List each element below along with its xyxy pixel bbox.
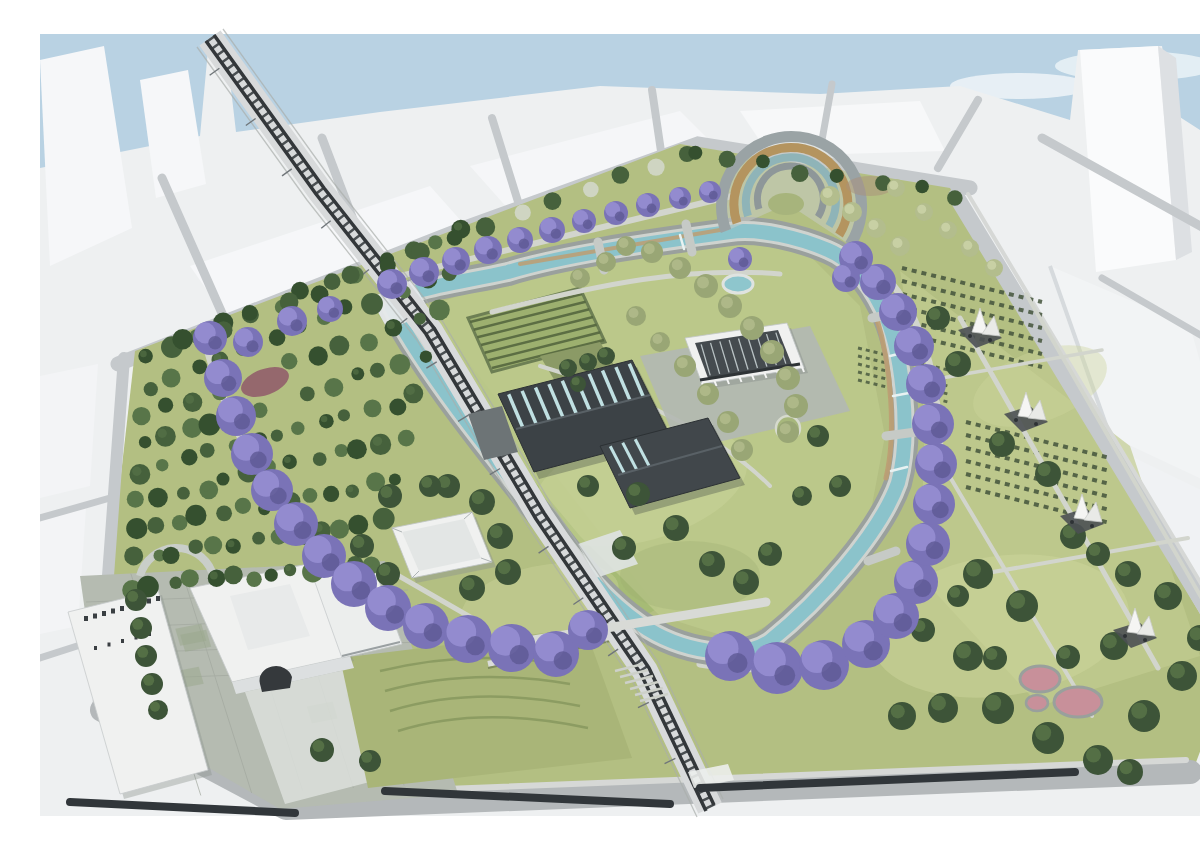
amphitheater-stage-lawn <box>768 193 804 215</box>
forest-tree <box>124 546 143 565</box>
forest-tree <box>271 430 283 442</box>
forest-tree <box>361 293 383 315</box>
forest-tree <box>246 572 261 587</box>
jacaranda-tree <box>193 321 227 355</box>
forest-tree <box>313 452 327 466</box>
jacaranda-tree <box>507 227 533 253</box>
forest-tree <box>177 487 190 500</box>
street-tree <box>688 146 702 160</box>
jacaranda-tree <box>568 610 608 650</box>
forest-tree <box>158 398 173 413</box>
jacaranda-tree <box>636 193 660 217</box>
forest-tree <box>398 430 415 447</box>
jacaranda-tree <box>442 247 470 275</box>
street-tree <box>476 217 495 236</box>
forest-tree <box>390 354 411 375</box>
street-tree <box>791 165 808 182</box>
forest-tree <box>324 378 343 397</box>
forest-tree <box>323 486 339 502</box>
jacaranda-tree <box>604 201 628 225</box>
jacaranda-tree <box>705 631 755 681</box>
jacaranda-tree <box>894 326 934 366</box>
jacaranda-tree <box>832 264 860 292</box>
street-tree <box>647 158 664 175</box>
street-tree <box>612 166 630 184</box>
masterplan-svg <box>40 16 1200 848</box>
jacaranda-tree <box>474 236 502 264</box>
forest-tree <box>217 473 230 486</box>
forest-tree <box>204 536 222 554</box>
jacaranda-tree <box>699 181 721 203</box>
jacaranda-tree <box>539 217 565 243</box>
forest-tree <box>303 488 318 503</box>
forest-tree <box>348 515 368 535</box>
jacaranda-tree <box>912 403 954 445</box>
forest-tree <box>347 439 367 459</box>
street-tree <box>719 151 736 168</box>
jacaranda-tree <box>488 624 536 672</box>
street-tree <box>830 169 844 183</box>
forest-tree <box>126 518 147 539</box>
street-tree <box>515 204 531 220</box>
street-tree <box>915 180 929 194</box>
jacaranda-tree <box>231 433 273 475</box>
forest-tree <box>185 505 206 526</box>
jacaranda-tree <box>572 209 596 233</box>
forest-tree <box>132 407 150 425</box>
forest-tree <box>300 386 315 401</box>
forest-tree <box>139 436 151 448</box>
jacaranda-tree <box>403 603 449 649</box>
street-tree <box>756 155 770 169</box>
jacaranda-tree <box>277 306 307 336</box>
forest-tree <box>291 422 304 435</box>
forest-tree <box>224 565 243 584</box>
street-tree <box>947 190 963 206</box>
pink-play-circle <box>1026 695 1048 711</box>
forest-tree <box>389 474 401 486</box>
forest-tree <box>364 400 382 418</box>
forest-tree <box>127 491 144 508</box>
jacaranda-tree <box>216 396 256 436</box>
forest-tree <box>373 508 395 530</box>
jacaranda-tree <box>233 327 263 357</box>
street-tree <box>583 182 599 198</box>
forest-tree <box>216 505 232 521</box>
forest-tree <box>162 369 181 388</box>
forest-tree <box>428 235 442 249</box>
forest-tree <box>360 334 378 352</box>
masterplan-render <box>40 16 1200 848</box>
forest-tree <box>156 459 168 471</box>
jacaranda-tree <box>894 560 938 604</box>
forest-tree <box>338 409 350 421</box>
pink-play-circle <box>1020 666 1060 692</box>
street-tree <box>242 305 258 321</box>
jacaranda-tree <box>728 247 752 271</box>
forest-tree <box>200 443 215 458</box>
forest-tree <box>329 336 349 356</box>
jacaranda-tree <box>906 522 950 566</box>
forest-tree <box>192 359 207 374</box>
street-tree <box>447 230 463 246</box>
forest-tree <box>309 346 328 365</box>
forest-tree <box>144 382 158 396</box>
street-tree <box>544 192 562 210</box>
forest-tree <box>181 449 197 465</box>
forest-tree <box>162 547 179 564</box>
street-tree <box>342 266 360 284</box>
forest-tree <box>148 488 168 508</box>
jacaranda-tree <box>915 443 957 485</box>
jacaranda-tree <box>751 642 803 694</box>
forest-tree <box>189 540 203 554</box>
city-rooftop <box>40 364 98 498</box>
street-tree <box>172 329 192 349</box>
jacaranda-tree <box>906 364 946 404</box>
forest-tree <box>182 418 202 438</box>
jacaranda-tree <box>799 640 849 690</box>
forest-tree <box>429 299 450 320</box>
jacaranda-tree <box>377 269 407 299</box>
forest-tree <box>420 351 432 363</box>
jacaranda-tree <box>913 483 955 525</box>
forest-tree <box>265 569 278 582</box>
forest-tree <box>370 363 385 378</box>
jacaranda-tree <box>669 187 691 209</box>
forest-tree <box>414 313 426 325</box>
oval-pond <box>723 275 753 293</box>
forest-tree <box>147 517 164 534</box>
jacaranda-tree <box>444 615 492 663</box>
jacaranda-tree <box>204 359 242 397</box>
forest-tree <box>335 444 348 457</box>
forest-tree <box>181 569 199 587</box>
pink-play-circle <box>1054 687 1102 717</box>
forest-tree <box>252 532 265 545</box>
jacaranda-tree <box>409 257 439 287</box>
forest-tree <box>324 273 341 290</box>
jacaranda-tree <box>317 296 343 322</box>
forest-tree <box>235 498 251 514</box>
forest-tree <box>389 399 406 416</box>
forest-tree <box>170 577 182 589</box>
